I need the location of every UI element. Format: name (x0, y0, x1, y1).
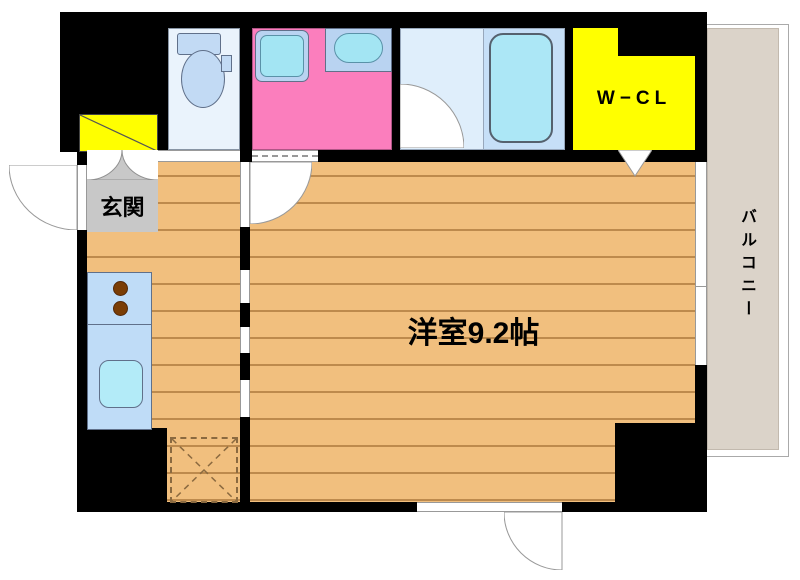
stove-burner-icon (113, 301, 128, 316)
wall-toilet-right (240, 12, 252, 162)
stove-burner-icon (113, 281, 128, 296)
bottom-door-arc (504, 512, 563, 570)
vanity-sink-icon (334, 33, 383, 63)
balcony-label: バルコニー (728, 175, 758, 355)
bottom-door-opening (417, 502, 562, 512)
washroom-sliding-door (252, 150, 318, 162)
hallway-floor (158, 162, 240, 232)
wall-bottom-b (562, 502, 707, 512)
bathroom-door-arc (400, 84, 464, 148)
wall-left-stub (77, 150, 87, 165)
window-tick (696, 286, 706, 287)
kitchen-sink-icon (99, 360, 143, 408)
genkan-label: 玄関 (87, 190, 158, 222)
wall-right-top (695, 12, 707, 162)
genkan-dome (87, 150, 158, 181)
refrigerator-space (170, 437, 238, 503)
partition-seg-2 (240, 303, 250, 327)
entrance-opening (77, 165, 87, 230)
refrigerator-space-cross (172, 439, 236, 501)
floor-plan: バルコニー W−CL (0, 0, 800, 580)
toilet-flush-icon (221, 55, 232, 72)
wall-bathroom-right (565, 12, 573, 162)
partition-seg-4 (240, 417, 250, 512)
toilet-bowl-icon (181, 50, 225, 108)
shoe-cabinet-diagonal (80, 115, 157, 151)
wall-bottom-left-block (77, 428, 167, 512)
partition-seg-3 (240, 353, 250, 380)
bathtub-icon (489, 33, 553, 143)
closet-notch-wall (618, 28, 695, 56)
washing-machine-drum (260, 35, 304, 77)
toilet-door-threshold (158, 150, 240, 162)
main-room-label: 洋室9.2帖 (250, 308, 697, 352)
kitchen-counter-divider (87, 272, 152, 325)
partition-seg-1 (240, 227, 250, 270)
main-room-door-arc (250, 162, 312, 224)
entrance-door-arc (9, 165, 77, 230)
shoe-cabinet (79, 114, 158, 152)
walk-in-closet-label: W−CL (573, 88, 695, 110)
wall-washroom-right (392, 12, 400, 162)
closet-door-wedge (618, 150, 652, 177)
wall-bottom-right-block (615, 423, 707, 512)
wall-top (60, 12, 707, 28)
